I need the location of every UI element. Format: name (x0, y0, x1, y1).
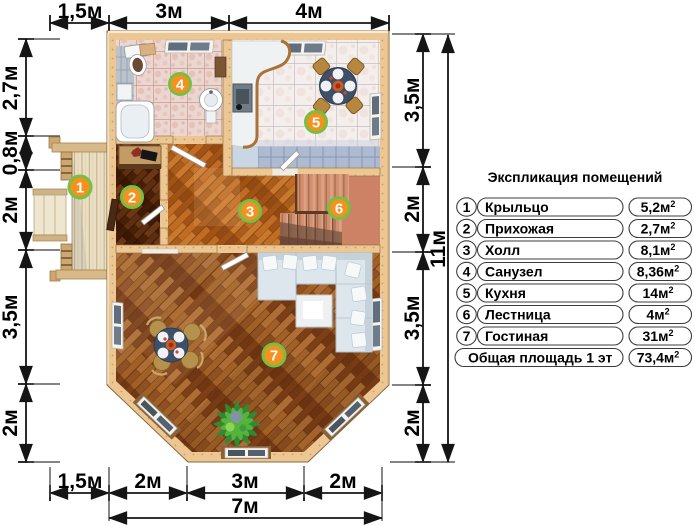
svg-text:5: 5 (463, 285, 471, 301)
svg-text:0,8м: 0,8м (0, 131, 22, 176)
svg-text:1: 1 (76, 180, 84, 197)
svg-text:8,36м2: 8,36м2 (637, 264, 680, 280)
svg-text:4: 4 (463, 264, 471, 280)
svg-text:3: 3 (246, 204, 254, 221)
svg-text:2м: 2м (0, 409, 22, 436)
svg-text:2м: 2м (401, 195, 424, 222)
svg-text:2: 2 (128, 190, 136, 207)
svg-text:6: 6 (463, 307, 471, 323)
svg-text:1: 1 (463, 199, 471, 215)
svg-text:2м: 2м (134, 470, 161, 493)
svg-text:2м: 2м (401, 409, 424, 436)
svg-text:8,1м2: 8,1м2 (641, 242, 676, 258)
svg-text:2,7м: 2,7м (0, 66, 22, 111)
svg-text:3м: 3м (231, 470, 258, 493)
svg-text:5: 5 (312, 115, 320, 132)
svg-text:Кухня: Кухня (485, 285, 526, 301)
svg-text:Холл: Холл (485, 242, 520, 258)
svg-text:2,7м2: 2,7м2 (641, 221, 676, 237)
svg-text:Общая площадь 1 эт: Общая площадь 1 эт (468, 350, 612, 366)
svg-text:2м: 2м (0, 196, 22, 223)
svg-text:3: 3 (463, 242, 471, 258)
svg-text:2: 2 (463, 221, 471, 237)
svg-text:3,5м: 3,5м (0, 295, 22, 340)
svg-text:1,5м: 1,5м (58, 0, 103, 23)
svg-text:Лестница: Лестница (485, 307, 551, 323)
svg-text:3,5м: 3,5м (401, 296, 424, 341)
svg-text:7м: 7м (231, 495, 258, 518)
svg-text:11м: 11м (427, 230, 450, 268)
svg-text:5,2м2: 5,2м2 (641, 199, 676, 215)
svg-text:Гостиная: Гостиная (485, 328, 548, 344)
svg-text:2м: 2м (329, 470, 356, 493)
svg-text:Прихожая: Прихожая (485, 221, 554, 237)
svg-text:Крыльцо: Крыльцо (485, 199, 549, 215)
svg-text:3,5м: 3,5м (401, 78, 424, 123)
svg-text:7: 7 (463, 328, 471, 344)
svg-text:Санузел: Санузел (485, 264, 543, 280)
svg-text:4м: 4м (295, 0, 322, 23)
svg-text:Экспликация помещений: Экспликация помещений (488, 169, 663, 185)
svg-text:6: 6 (335, 201, 343, 218)
svg-text:1,5м: 1,5м (58, 470, 103, 493)
svg-text:4: 4 (176, 77, 185, 94)
svg-text:3м: 3м (155, 0, 182, 23)
svg-text:73,4м2: 73,4м2 (637, 350, 680, 366)
svg-text:7: 7 (270, 348, 278, 365)
